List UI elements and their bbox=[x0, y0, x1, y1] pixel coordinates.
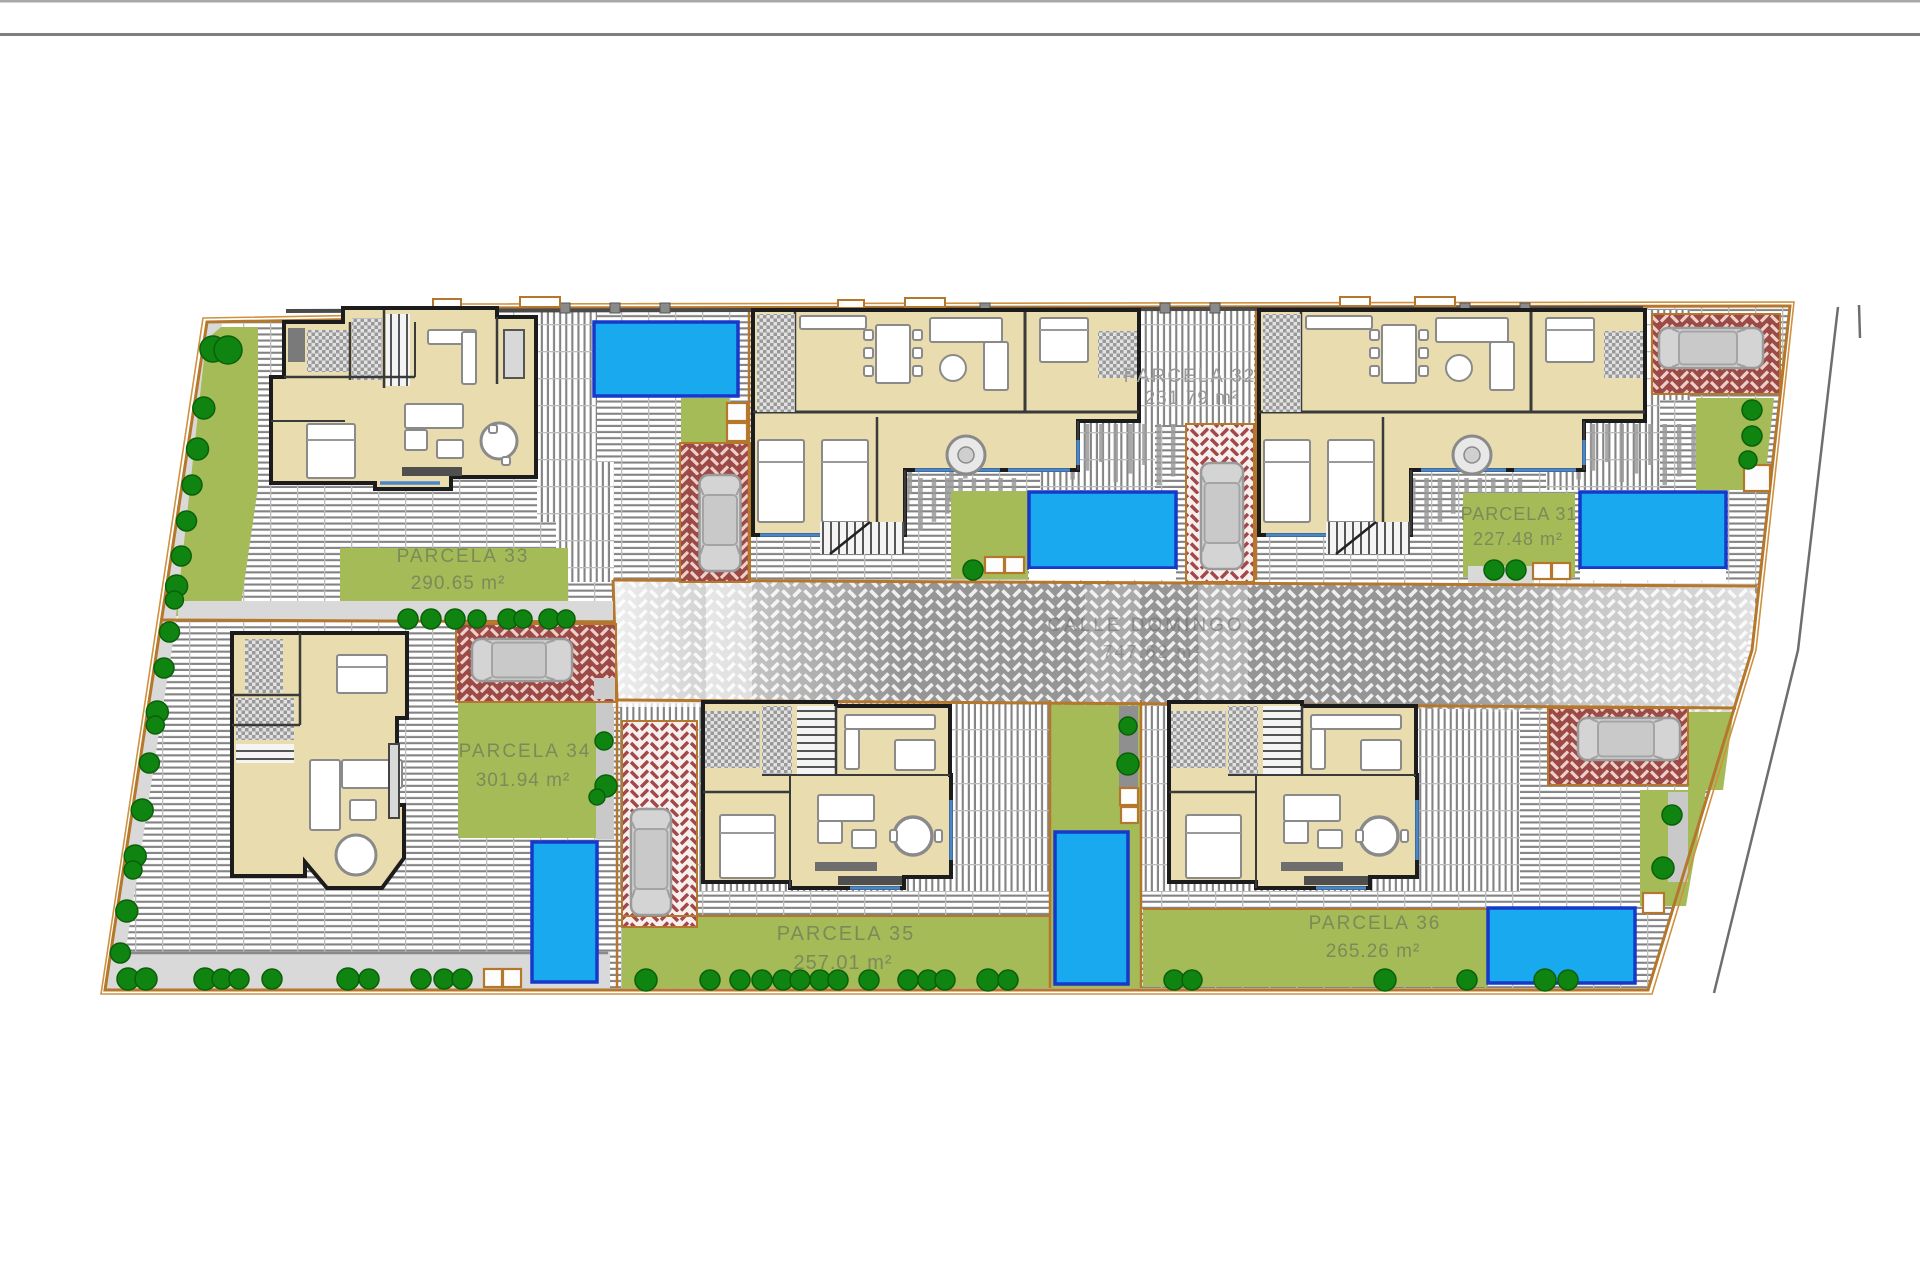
svg-text:PARCELA 34: PARCELA 34 bbox=[459, 741, 592, 762]
svg-text:PARCELA 35: PARCELA 35 bbox=[777, 923, 916, 945]
svg-text:747.62 m²: 747.62 m² bbox=[1102, 642, 1201, 662]
svg-text:PARCELA 33: PARCELA 33 bbox=[397, 546, 530, 567]
svg-text:CALLE DOMINGO: CALLE DOMINGO bbox=[1047, 615, 1244, 636]
svg-text:227.48 m²: 227.48 m² bbox=[1473, 529, 1563, 549]
svg-text:PARCELA 31: PARCELA 31 bbox=[1461, 504, 1578, 524]
svg-text:PARCELA 36: PARCELA 36 bbox=[1309, 913, 1442, 934]
svg-text:265.26 m²: 265.26 m² bbox=[1326, 941, 1421, 962]
svg-text:231.79 m²: 231.79 m² bbox=[1145, 388, 1240, 409]
svg-text:257.01 m²: 257.01 m² bbox=[793, 952, 892, 974]
svg-text:301.94 m²: 301.94 m² bbox=[476, 770, 571, 791]
svg-text:290.65 m²: 290.65 m² bbox=[411, 573, 506, 594]
svg-text:PARCELA 32: PARCELA 32 bbox=[1124, 366, 1257, 387]
